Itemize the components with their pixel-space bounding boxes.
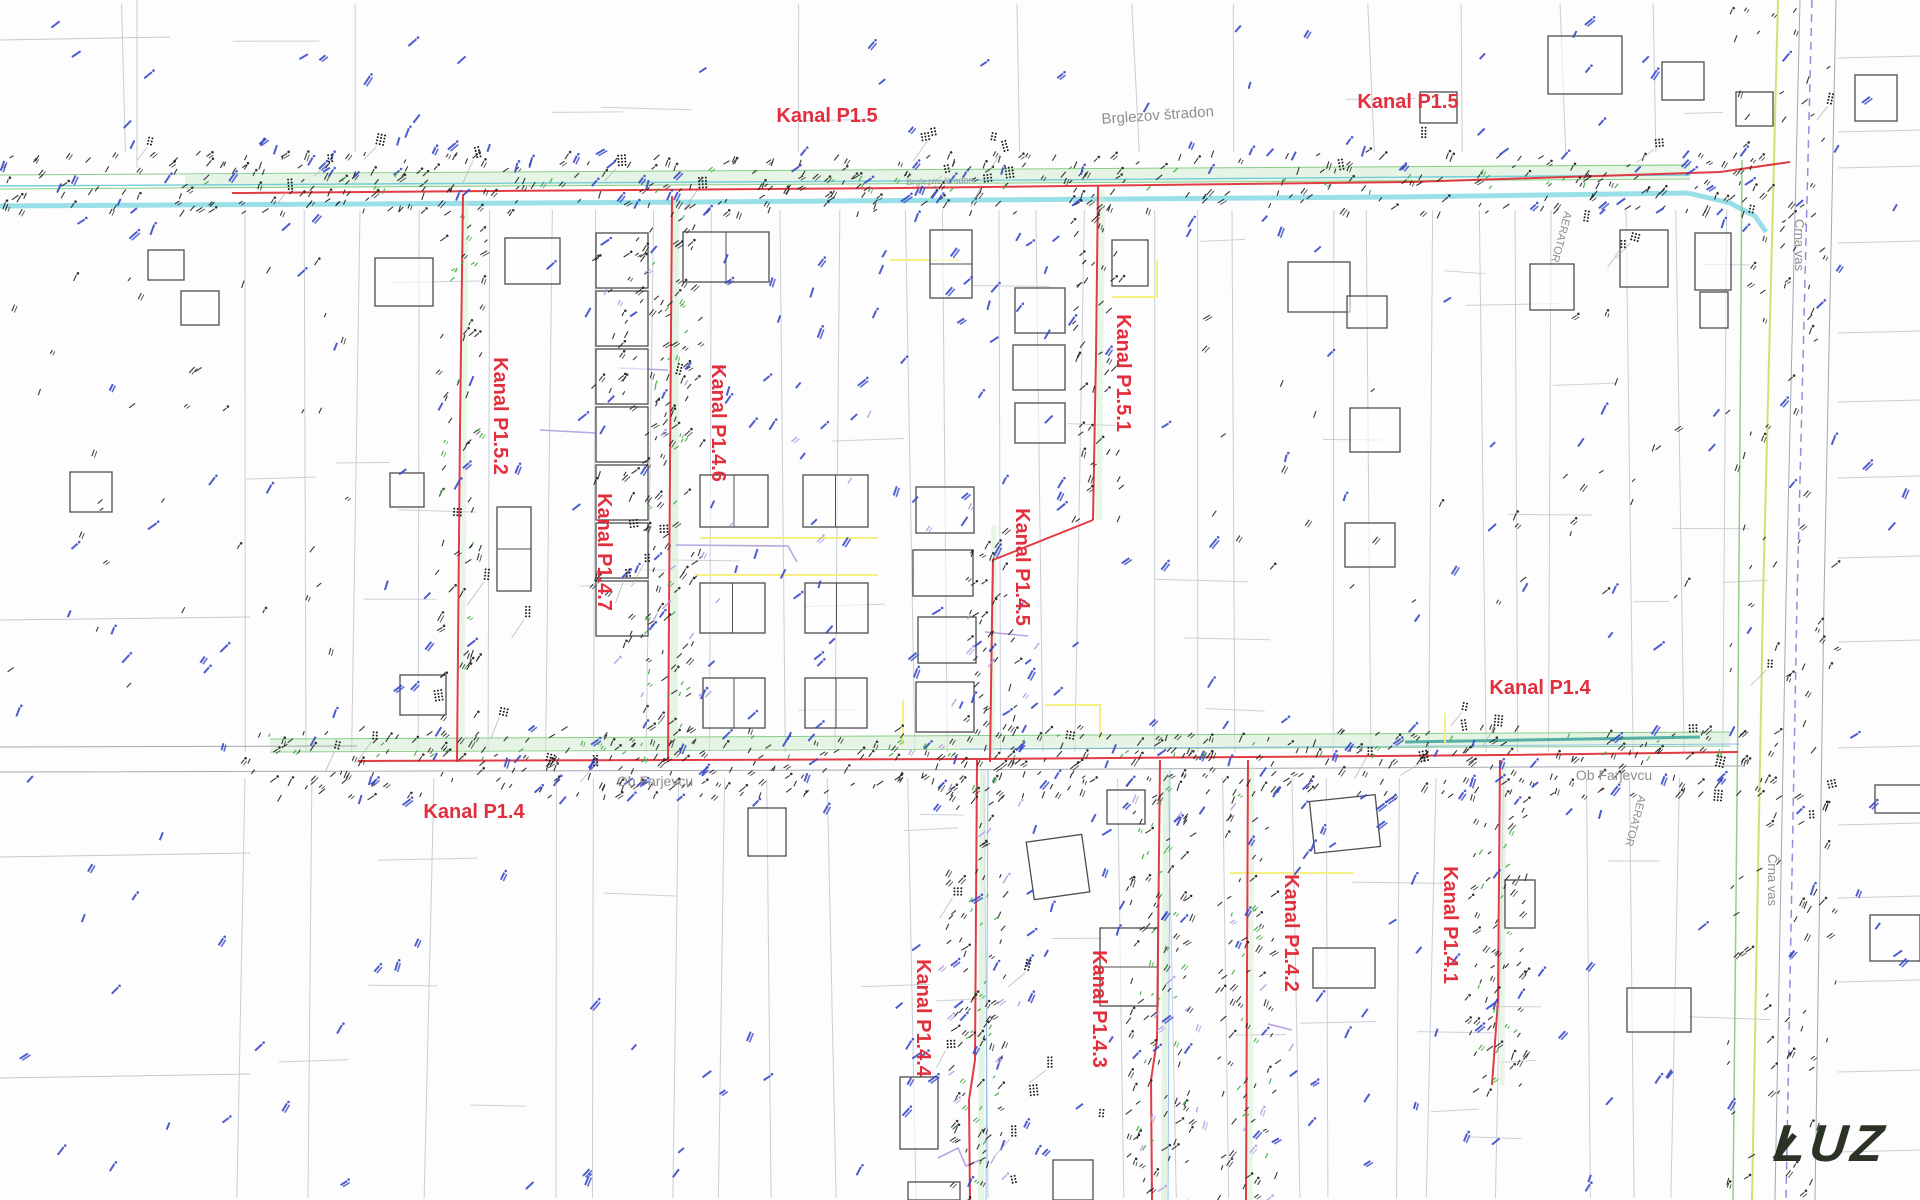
luz-logo: LUZ	[1779, 1118, 1890, 1170]
point-cluster	[453, 508, 462, 517]
canal-label: Kanal P1.4.4	[912, 959, 934, 1078]
point-cluster	[327, 154, 333, 163]
building	[1053, 1160, 1093, 1200]
canal-label: Kanal P1.4.1	[1439, 866, 1461, 984]
building	[803, 475, 868, 527]
building	[181, 291, 219, 325]
point-cluster	[946, 1040, 955, 1049]
building	[1347, 296, 1387, 328]
building	[1620, 230, 1668, 287]
building	[1015, 403, 1065, 443]
building	[1548, 36, 1622, 94]
canal-label: Kanal P1.5	[776, 105, 877, 127]
building	[1855, 75, 1897, 121]
point-cluster	[983, 173, 993, 182]
building	[1288, 262, 1350, 312]
canal-label: Kanal P1.4.5	[1011, 508, 1033, 626]
street-label: Brglezov štradon	[906, 175, 974, 187]
building	[1112, 240, 1148, 286]
building	[390, 473, 424, 507]
point-cluster	[375, 133, 386, 146]
building	[148, 250, 184, 280]
point-cluster	[484, 568, 491, 580]
point-cluster	[1367, 747, 1372, 755]
street-label: Črna vas	[1765, 854, 1780, 907]
street-label: Ob Farjevcu	[617, 773, 693, 789]
canal-label: Kanal P1.5.1	[1112, 314, 1134, 432]
building	[1870, 915, 1920, 961]
building	[1107, 790, 1145, 824]
building	[805, 678, 867, 728]
street-label: AERATOR	[1548, 210, 1573, 264]
canal-label: Kanal P1.5.2	[489, 357, 511, 475]
canal-label: Kanal P1.4.3	[1088, 950, 1110, 1068]
point-cluster	[1029, 1084, 1039, 1096]
building	[700, 475, 768, 527]
point-cluster	[953, 887, 962, 896]
canal-label: Kanal P1.4	[1489, 677, 1591, 699]
point-cluster	[1713, 789, 1723, 801]
street-label: Črna vas	[1792, 219, 1807, 272]
map-viewport: Kanal P1.5Kanal P1.5Brglezov štradonBrgl…	[0, 0, 1920, 1200]
building	[916, 682, 974, 732]
building	[400, 675, 446, 715]
building	[1530, 264, 1574, 310]
building	[1627, 988, 1691, 1032]
building	[1013, 345, 1065, 390]
point-cluster	[617, 154, 627, 166]
point-cluster	[1689, 724, 1698, 733]
building	[1700, 292, 1728, 328]
canal-label: Kanal P1.4.6	[707, 364, 729, 482]
point-cluster	[1047, 1056, 1053, 1068]
building	[1309, 795, 1380, 854]
building	[805, 583, 868, 633]
point-cluster	[1655, 138, 1665, 147]
map-canvas: Kanal P1.5Kanal P1.5Brglezov štradonBrgl…	[0, 0, 1920, 1200]
point-cluster	[1460, 719, 1467, 731]
building	[700, 583, 765, 633]
point-cluster	[1461, 702, 1468, 711]
point-cluster	[1827, 779, 1837, 789]
point-cluster	[1098, 1109, 1104, 1118]
building	[596, 233, 648, 288]
point-cluster	[1065, 730, 1075, 740]
point-cluster	[1010, 1175, 1017, 1184]
point-cluster	[525, 606, 531, 618]
building	[913, 550, 973, 596]
canal-label: Kanal P1.4.2	[1280, 874, 1302, 992]
point-cluster	[1809, 810, 1815, 819]
street-label: AERATOR	[1622, 794, 1647, 848]
point-cluster	[659, 524, 668, 533]
building	[1505, 880, 1535, 928]
building	[1313, 948, 1375, 988]
point-cluster	[930, 127, 937, 136]
point-cluster	[1767, 659, 1773, 668]
point-cluster	[147, 136, 154, 145]
point-cluster	[1493, 714, 1503, 726]
building	[1026, 834, 1090, 899]
building	[748, 808, 786, 856]
building	[596, 407, 648, 462]
building	[1662, 62, 1704, 100]
street-label: Brglezov štradon	[1101, 103, 1214, 128]
point-cluster	[920, 132, 930, 142]
point-cluster	[1421, 127, 1427, 139]
canal-label: Kanal P1.5	[1357, 91, 1458, 113]
building	[70, 472, 112, 512]
building	[1695, 233, 1731, 290]
point-cluster	[499, 707, 509, 717]
building	[1875, 785, 1920, 813]
point-cluster	[1826, 92, 1834, 104]
building	[497, 507, 531, 591]
street-label: Ob Farjevcu	[1576, 767, 1652, 783]
point-cluster	[629, 519, 639, 528]
point-cluster	[1001, 140, 1009, 153]
point-cluster	[990, 132, 997, 141]
building	[1015, 288, 1065, 333]
building	[596, 291, 648, 346]
building	[1350, 408, 1400, 452]
point-cluster	[1583, 210, 1590, 222]
point-cluster	[1011, 1125, 1017, 1137]
building	[703, 678, 765, 728]
building	[1345, 523, 1395, 567]
building	[916, 487, 974, 533]
canal-label: Kanal P1.4.7	[593, 493, 615, 611]
building	[375, 258, 433, 306]
building	[505, 238, 560, 284]
canal-label: Kanal P1.4	[423, 801, 525, 823]
